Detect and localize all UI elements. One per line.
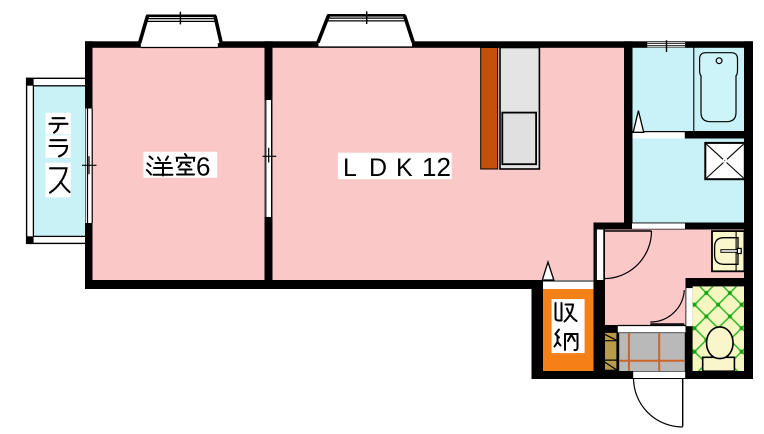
svg-text:D: D — [369, 154, 387, 182]
svg-text:L: L — [343, 154, 357, 182]
svg-text:K: K — [396, 154, 413, 182]
svg-text:12: 12 — [422, 152, 451, 182]
svg-text:6: 6 — [196, 152, 210, 182]
